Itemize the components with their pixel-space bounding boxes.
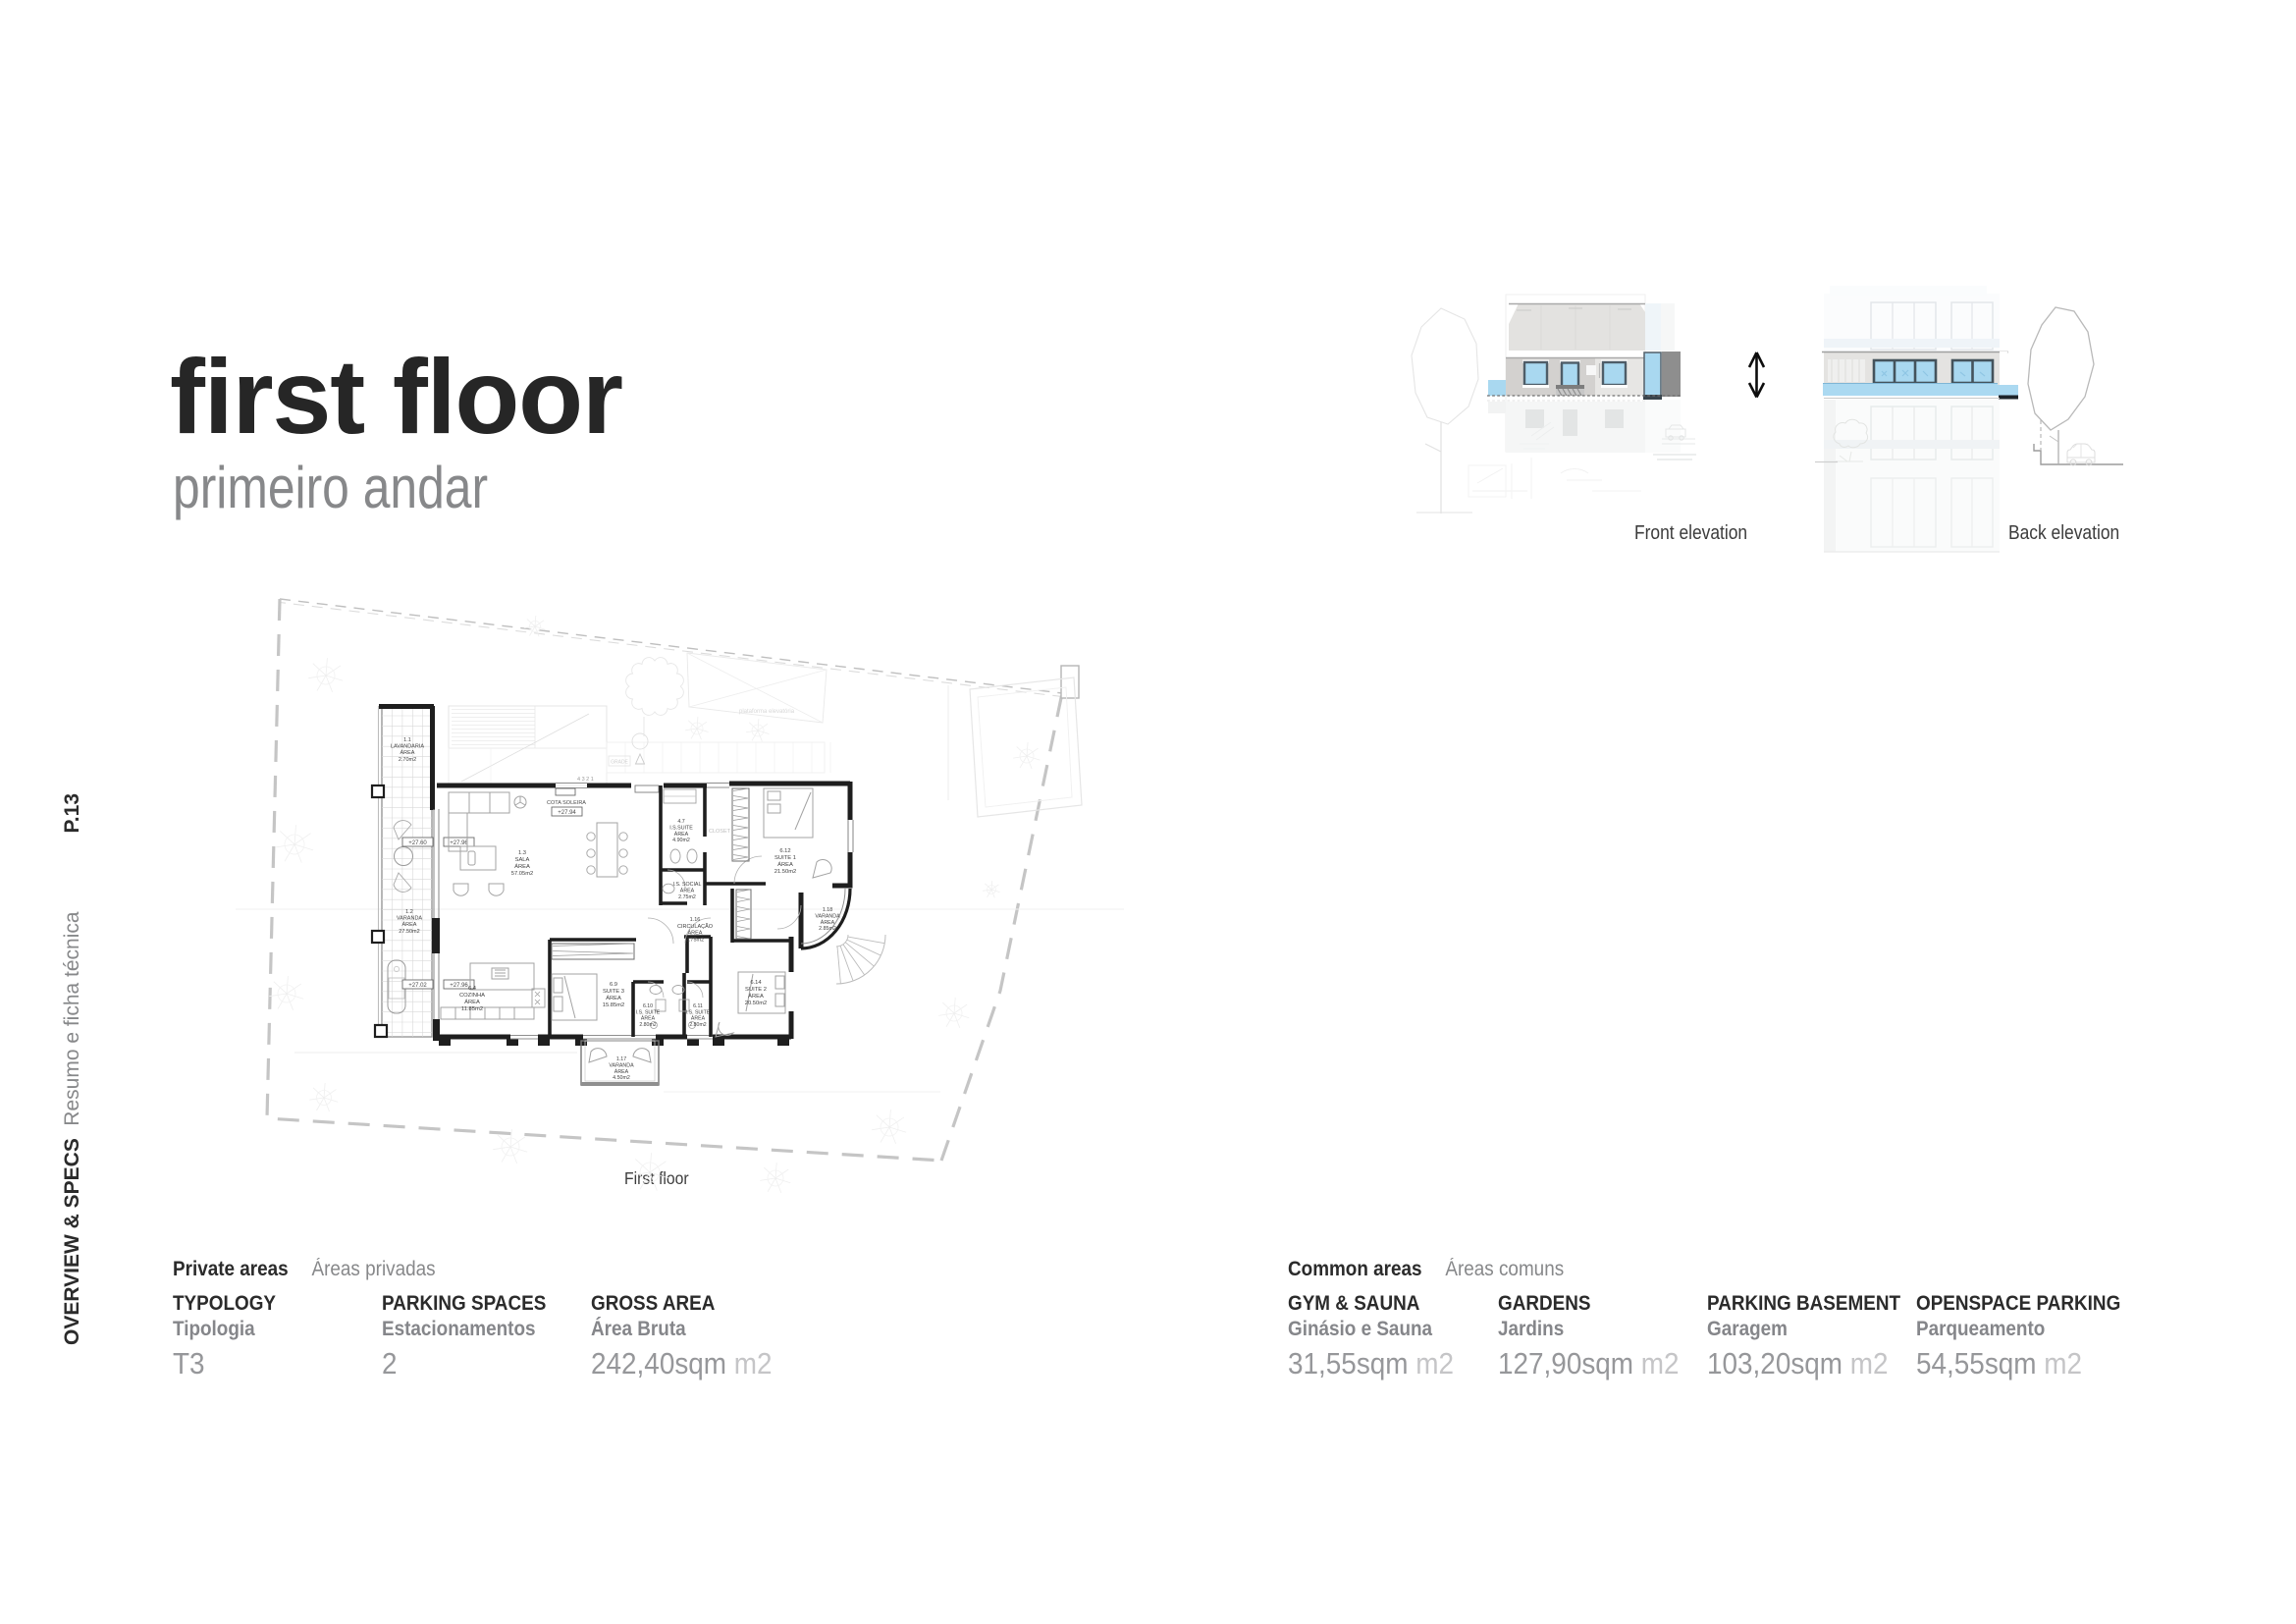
svg-text:LAVANDARIA: LAVANDARIA: [391, 744, 424, 750]
svg-text:11.85m2: 11.85m2: [461, 1006, 483, 1012]
svg-text:6.10: 6.10: [643, 1003, 653, 1009]
svg-text:4 3 2 1: 4 3 2 1: [577, 777, 594, 783]
svg-text:+27.94: +27.94: [558, 810, 576, 816]
svg-text:4.7: 4.7: [677, 819, 684, 825]
svg-text:3.75m2: 3.75m2: [686, 937, 704, 943]
svg-text:6.4: 6.4: [468, 986, 477, 992]
svg-text:1.2: 1.2: [405, 909, 413, 915]
svg-text:4.50m2: 4.50m2: [613, 1075, 630, 1081]
svg-text:2.75m2: 2.75m2: [678, 894, 696, 900]
svg-text:+27.02: +27.02: [408, 983, 427, 989]
svg-text:27.50m2: 27.50m2: [399, 929, 419, 935]
svg-text:ÁREA: ÁREA: [402, 921, 417, 928]
svg-text:1.1: 1.1: [403, 737, 411, 743]
svg-text:+27.96: +27.96: [450, 983, 468, 989]
svg-text:ÁREA: ÁREA: [464, 999, 480, 1005]
svg-text:GRADE: GRADE: [611, 760, 628, 766]
svg-text:ÁREA: ÁREA: [641, 1015, 656, 1022]
svg-text:ÁREA: ÁREA: [748, 993, 764, 1000]
svg-text:ÁREA: ÁREA: [514, 863, 530, 870]
svg-text:2.85m2: 2.85m2: [819, 926, 836, 932]
svg-text:ÁREA: ÁREA: [691, 1015, 706, 1022]
svg-text:+27.60: +27.60: [408, 840, 427, 846]
svg-text:6.14: 6.14: [750, 980, 762, 986]
svg-text:ÁREA: ÁREA: [680, 887, 695, 893]
svg-text:I.S. SOCIAL: I.S. SOCIAL: [673, 882, 702, 888]
svg-text:ÁREA: ÁREA: [821, 919, 835, 926]
svg-text:ÁREA: ÁREA: [674, 831, 689, 838]
svg-text:+27.96: +27.96: [450, 840, 468, 846]
svg-text:plataforma elevatória: plataforma elevatória: [739, 709, 795, 715]
svg-text:ÁREA: ÁREA: [400, 749, 415, 756]
svg-text:57.05m2: 57.05m2: [511, 871, 534, 877]
svg-text:ÁREA: ÁREA: [688, 930, 703, 937]
svg-text:1.18: 1.18: [823, 907, 832, 913]
svg-text:6.11: 6.11: [693, 1003, 703, 1009]
svg-text:ÁREA: ÁREA: [606, 995, 621, 1001]
svg-text:20.50m2: 20.50m2: [745, 1001, 768, 1006]
svg-text:CLOSET: CLOSET: [709, 829, 731, 835]
svg-text:2.80m2: 2.80m2: [639, 1022, 656, 1028]
svg-text:CIRCULAÇÃO: CIRCULAÇÃO: [677, 923, 714, 930]
svg-text:SUITE 3: SUITE 3: [603, 989, 624, 995]
svg-text:2.70m2: 2.70m2: [399, 757, 416, 763]
svg-text:VARANDA: VARANDA: [815, 913, 840, 919]
svg-text:COTA SOLEIRA: COTA SOLEIRA: [547, 800, 586, 806]
svg-text:ÁREA: ÁREA: [614, 1068, 629, 1075]
svg-text:1.17: 1.17: [616, 1056, 626, 1062]
svg-text:2.80m2: 2.80m2: [689, 1022, 706, 1028]
svg-text:I.S. SUITE: I.S. SUITE: [686, 1009, 711, 1015]
svg-text:VARANDA: VARANDA: [609, 1062, 634, 1068]
svg-text:6.9: 6.9: [610, 982, 617, 988]
svg-text:1.3: 1.3: [518, 850, 526, 856]
svg-text:15.85m2: 15.85m2: [603, 1002, 625, 1008]
svg-text:21.50m2: 21.50m2: [774, 869, 797, 875]
svg-text:1.16: 1.16: [690, 917, 701, 923]
svg-text:SUITE 2: SUITE 2: [745, 987, 767, 993]
svg-text:4.90m2: 4.90m2: [672, 838, 690, 843]
svg-text:COZINHA: COZINHA: [459, 993, 485, 999]
svg-text:ÁREA: ÁREA: [777, 861, 793, 868]
svg-text:SALA: SALA: [515, 857, 530, 863]
svg-text:I.S. SUITE: I.S. SUITE: [636, 1009, 661, 1015]
svg-text:6.12: 6.12: [779, 848, 790, 854]
svg-text:VARANDA: VARANDA: [397, 916, 423, 922]
svg-text:SUITE 1: SUITE 1: [774, 855, 796, 861]
svg-text:I.S.SUITE: I.S.SUITE: [669, 825, 693, 831]
